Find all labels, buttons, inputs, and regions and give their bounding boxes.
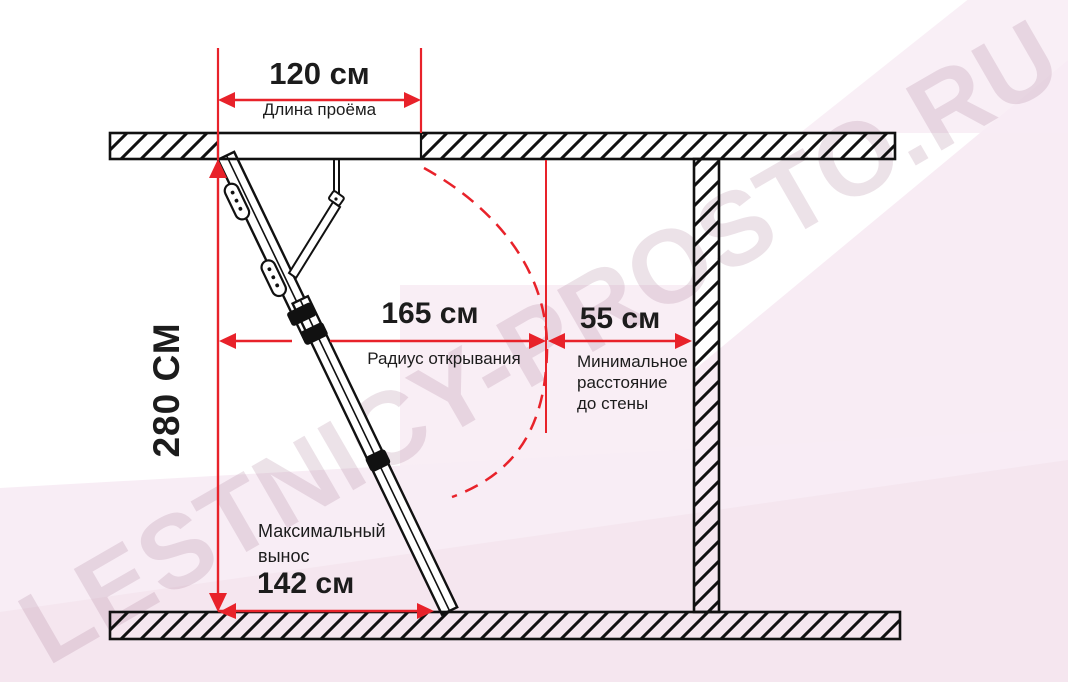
opening-radius-value: 165 см <box>330 297 530 331</box>
wall-distance-value: 55 см <box>545 302 695 336</box>
ceiling-height-value: 280 СМ <box>146 300 190 480</box>
swing-radius-arc <box>424 168 547 497</box>
hatch-door-rod <box>328 159 344 206</box>
wall-distance-label: Минимальное расстояние до стены <box>577 351 688 414</box>
max-reach-label: Максимальный вынос <box>258 519 386 569</box>
floor <box>110 612 900 639</box>
support-strut <box>289 202 340 278</box>
dimension-ceiling-height <box>209 159 227 612</box>
opening-width-label: Длина проёма <box>218 100 421 120</box>
opening-width-value: 120 см <box>218 56 421 92</box>
opening-radius-label: Радиус открывания <box>344 349 544 369</box>
wall <box>694 159 719 612</box>
attic-ladder-dimension-diagram: LESTNICY-PROSTO.RU <box>0 0 1068 682</box>
max-reach-value: 142 см <box>257 567 354 601</box>
